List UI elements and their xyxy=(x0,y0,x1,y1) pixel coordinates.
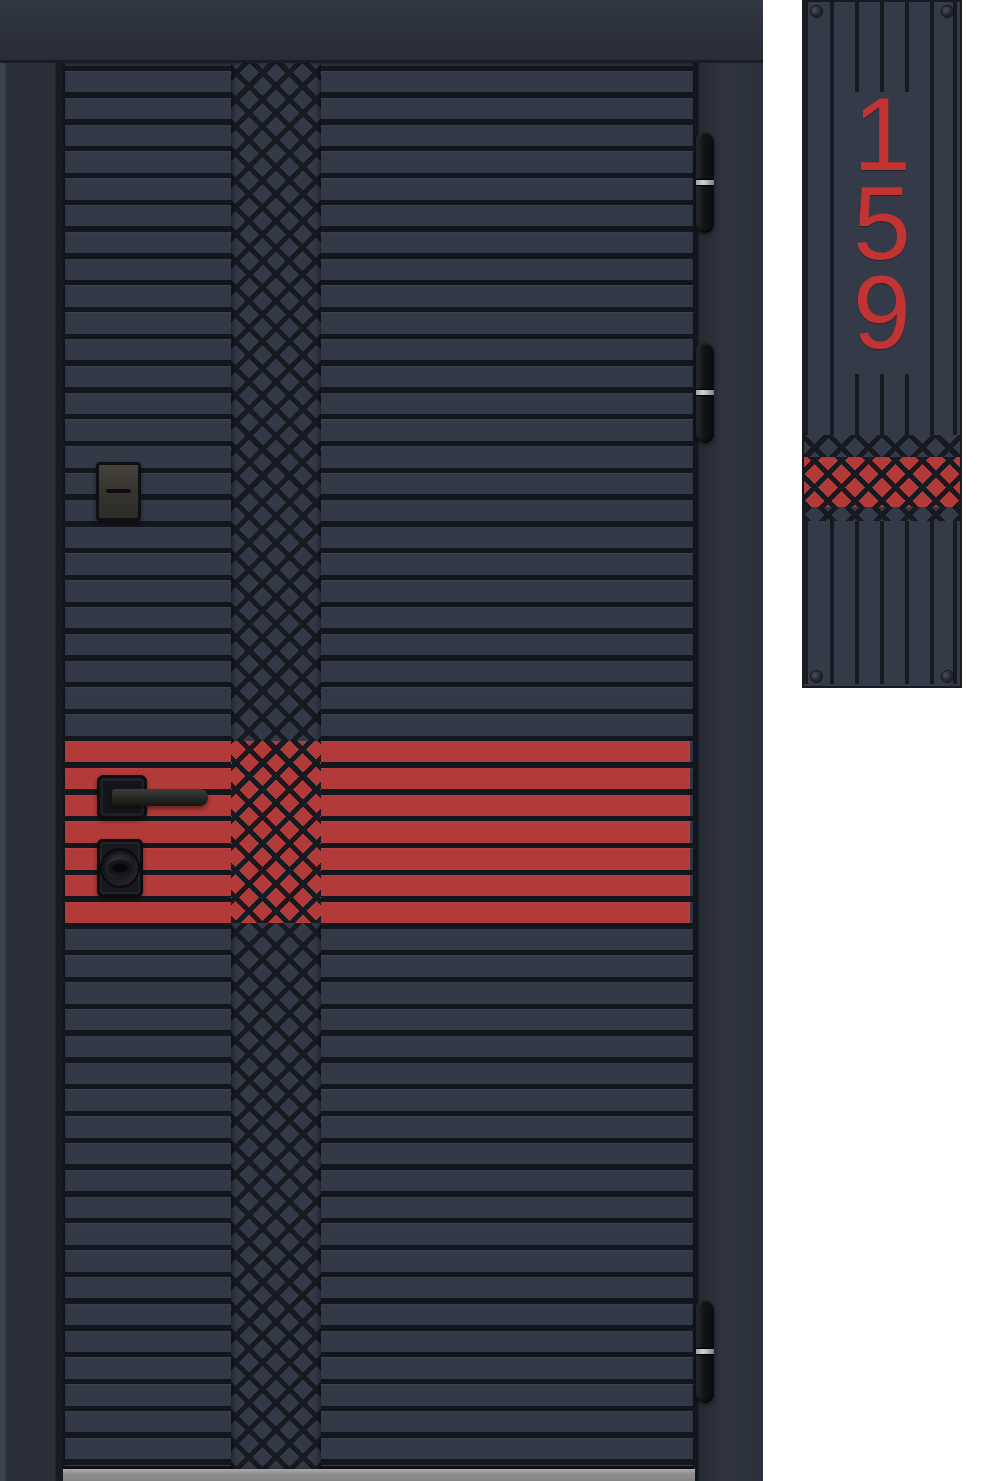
plate-lattice-red-band xyxy=(804,457,960,507)
product-image: 1 5 9 xyxy=(0,0,1000,1481)
plate-screw xyxy=(942,671,953,682)
plate-screw xyxy=(811,671,822,682)
house-number: 1 5 9 xyxy=(804,90,960,357)
diamond-lattice-column xyxy=(231,63,321,1469)
hinge-bottom xyxy=(696,1300,714,1403)
leaf-slats xyxy=(63,63,695,1469)
hinge-top xyxy=(696,132,714,233)
door-leaf xyxy=(63,63,695,1469)
door-frame-transom xyxy=(0,0,763,63)
hinge-ring xyxy=(696,180,714,185)
plate-grooves-middle xyxy=(804,374,960,435)
plate-screw xyxy=(811,6,822,17)
hinge-ring xyxy=(696,1349,714,1354)
door-handle-lever xyxy=(112,789,208,806)
house-number-digit: 9 xyxy=(853,268,911,357)
lock-keyway xyxy=(112,864,128,873)
keyhole-slot xyxy=(106,489,131,493)
plate-screw xyxy=(942,6,953,17)
hinge-ring xyxy=(696,390,714,395)
hinge-middle xyxy=(696,343,714,443)
door-frame-right-jamb xyxy=(695,63,763,1481)
lock-cylinder-knob xyxy=(100,848,140,888)
door-threshold xyxy=(63,1469,695,1481)
plate-grooves-bottom xyxy=(804,521,960,684)
number-plate: 1 5 9 xyxy=(802,0,962,688)
plate-lattice-band xyxy=(804,435,960,521)
lock-escutcheon xyxy=(97,839,143,897)
door-frame-left-jamb xyxy=(0,63,63,1481)
diamond-lattice-red-band xyxy=(231,741,321,923)
keyhole-cover xyxy=(96,462,141,521)
